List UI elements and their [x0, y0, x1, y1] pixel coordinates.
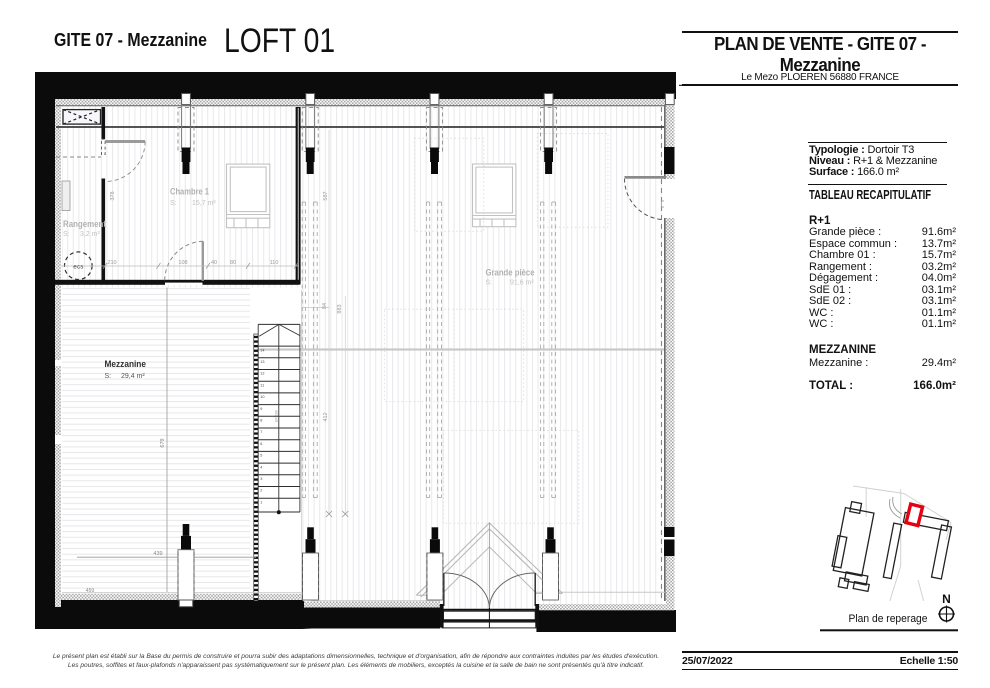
svg-text:ecs: ecs: [73, 263, 84, 270]
svg-text:Plan de reperage: Plan de reperage: [849, 613, 928, 625]
svg-text:883: 883: [337, 304, 343, 313]
svg-text:S:: S:: [105, 373, 112, 380]
svg-text:S:: S:: [63, 231, 70, 238]
svg-text:8: 8: [260, 419, 262, 423]
svg-text:2: 2: [260, 489, 262, 493]
svg-text:84: 84: [322, 303, 328, 309]
svg-text:Rangement: Rangement: [63, 219, 106, 229]
svg-text:1: 1: [260, 500, 262, 504]
svg-text:10: 10: [260, 395, 264, 399]
svg-text:110: 110: [270, 260, 279, 266]
svg-text:3: 3: [260, 477, 262, 481]
svg-text:412: 412: [323, 412, 329, 421]
svg-text:91,6 m²: 91,6 m²: [510, 280, 534, 287]
svg-text:378: 378: [110, 191, 116, 200]
svg-text:N: N: [942, 592, 951, 606]
svg-text:210: 210: [107, 260, 116, 266]
svg-text:40: 40: [211, 260, 217, 266]
svg-text:Mezzanine: Mezzanine: [105, 359, 147, 369]
svg-text:29,4 m²: 29,4 m²: [121, 373, 145, 380]
svg-text:13: 13: [260, 360, 264, 364]
svg-text:4: 4: [260, 465, 262, 469]
svg-text:679: 679: [160, 438, 166, 447]
svg-text:9: 9: [260, 407, 262, 411]
svg-text:80: 80: [230, 260, 236, 266]
svg-text:Grande pièce: Grande pièce: [486, 268, 535, 279]
svg-text:Chambre 1: Chambre 1: [170, 187, 209, 197]
svg-text:S:: S:: [170, 200, 177, 207]
svg-text:7: 7: [260, 430, 262, 434]
svg-text:S:: S:: [486, 280, 493, 287]
svg-text:439: 439: [153, 551, 162, 557]
svg-text:12: 12: [260, 372, 264, 376]
svg-text:11: 11: [260, 383, 264, 387]
svg-text:5: 5: [260, 454, 262, 458]
svg-text:3,2 m²: 3,2 m²: [80, 231, 101, 238]
svg-text:108: 108: [178, 260, 187, 266]
svg-text:587: 587: [323, 191, 329, 200]
svg-text:6: 6: [260, 442, 262, 446]
svg-text:15,7 m²: 15,7 m²: [192, 200, 216, 207]
svg-text:EP 180: EP 180: [275, 410, 279, 422]
svg-text:14: 14: [260, 348, 264, 352]
